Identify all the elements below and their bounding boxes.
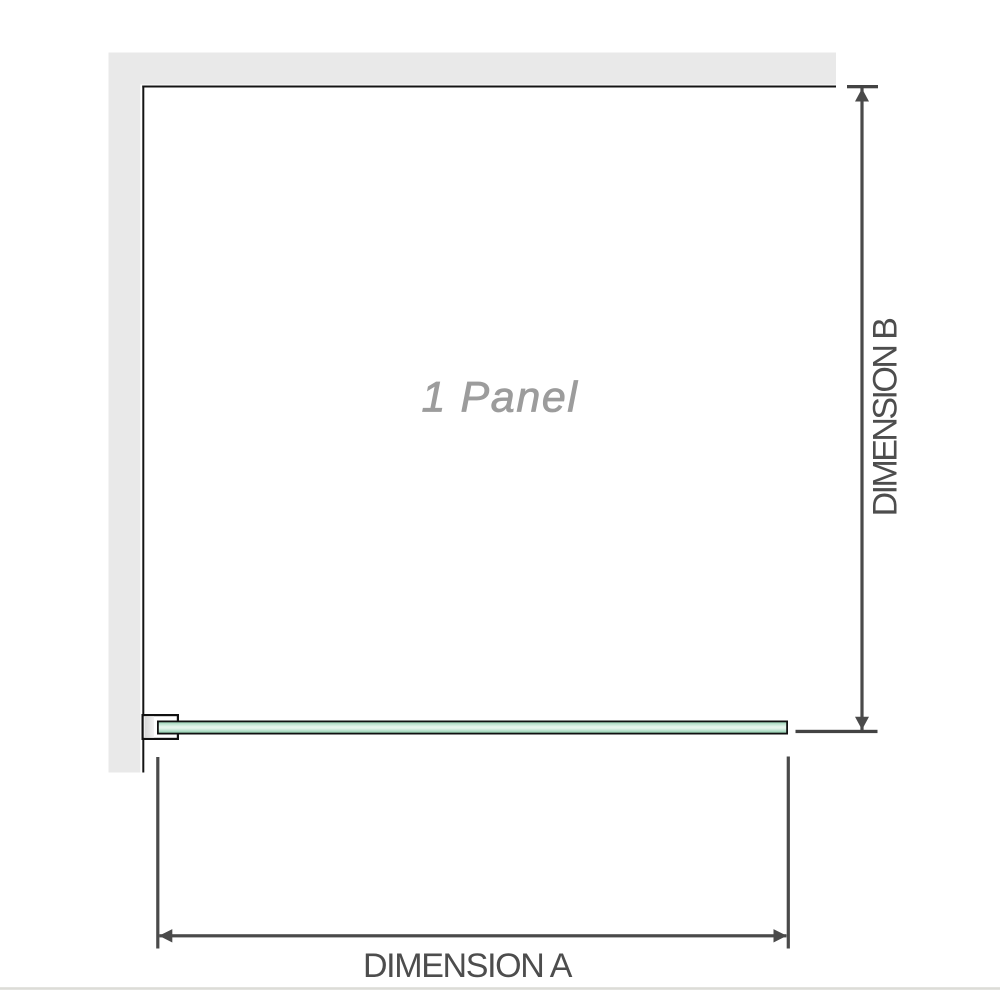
svg-text:DIMENSION A: DIMENSION A: [363, 947, 573, 985]
svg-text:DIMENSION B: DIMENSION B: [867, 319, 905, 517]
svg-text:1 Panel: 1 Panel: [421, 374, 578, 422]
